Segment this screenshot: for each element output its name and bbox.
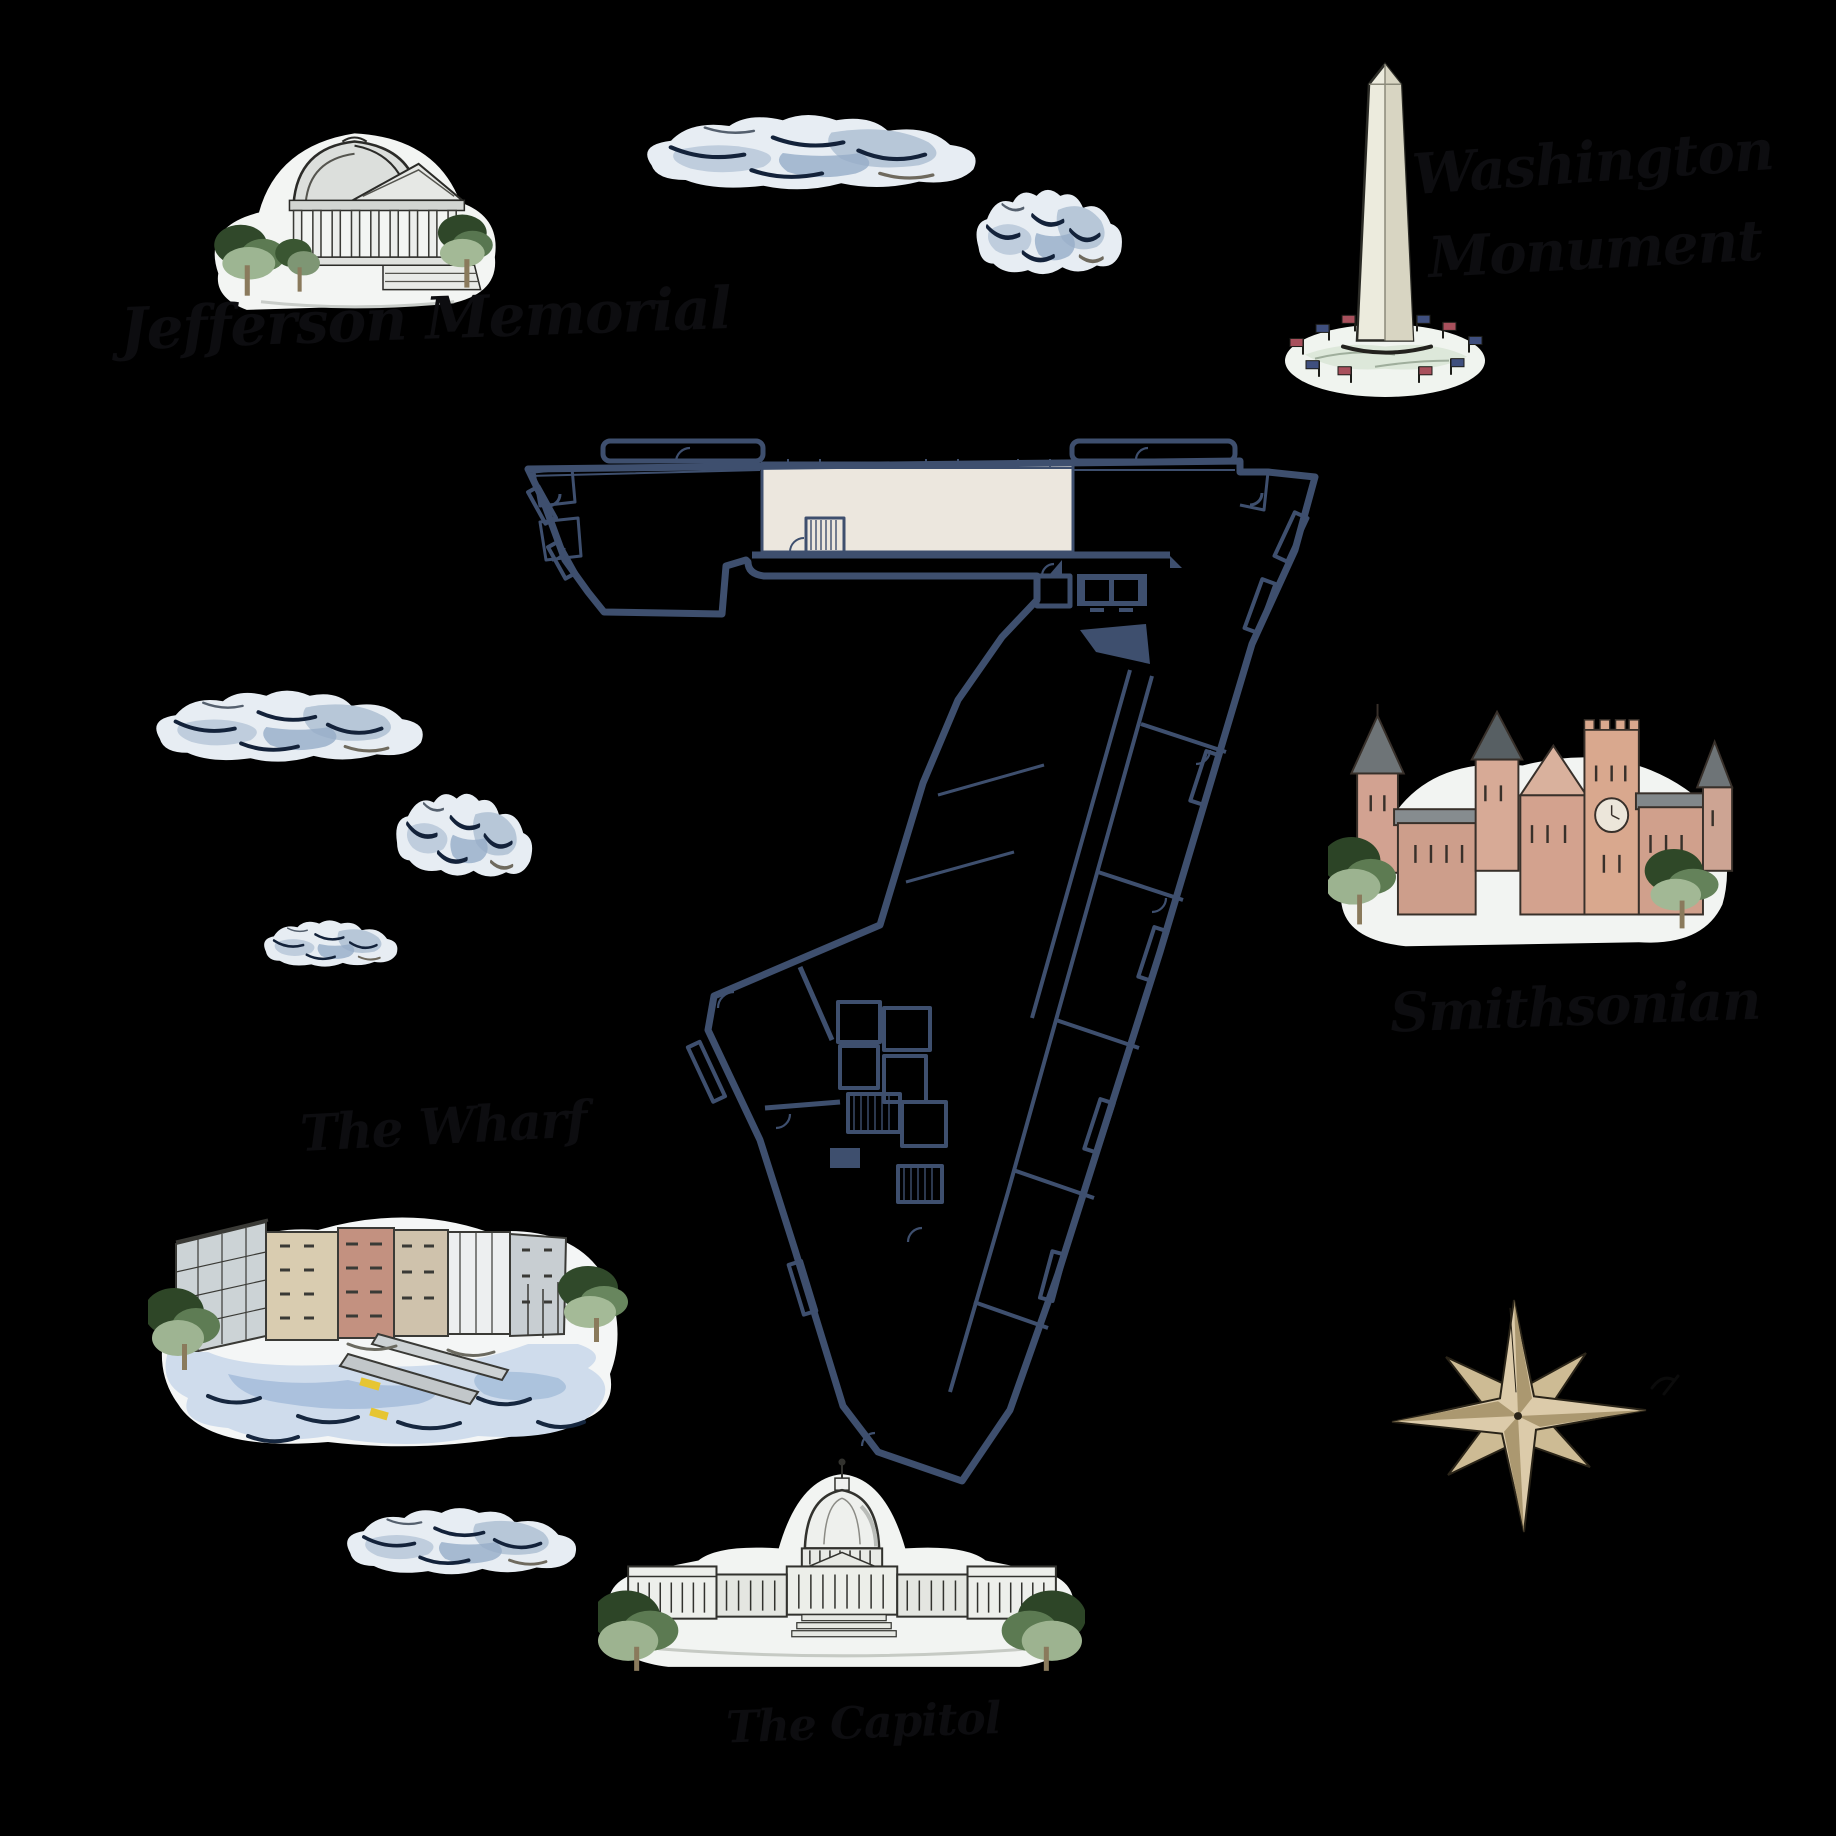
wharf-label: The Wharf — [299, 1095, 571, 1159]
stair-elevator-core — [765, 967, 946, 1202]
interior-walls — [950, 670, 1226, 1392]
smithsonian-illustration — [1328, 696, 1736, 984]
jefferson-memorial-label: Jefferson Memorial — [119, 284, 601, 359]
cloud-left-small — [260, 916, 402, 972]
dc-map-scene: Jefferson Memorial Washington Monument — [0, 0, 1836, 1836]
cloud-top-center — [637, 108, 987, 198]
cloud-top-right-small — [972, 182, 1127, 284]
memorial-columns — [294, 211, 457, 258]
plan-outer-walls — [528, 461, 1315, 1481]
cloud-left-long — [148, 684, 432, 770]
wharf-illustration — [148, 1184, 628, 1456]
cloud-left-mid — [387, 779, 543, 894]
smithsonian-label: Smithsonian — [1389, 974, 1711, 1039]
washington-monument-label-line2: Monument — [1427, 214, 1740, 286]
compass-star-icon — [1388, 1298, 1652, 1534]
cloud-bottom-left — [340, 1502, 584, 1582]
elevator-core — [1037, 574, 1150, 664]
highlighted-unit[interactable] — [762, 463, 1073, 552]
capitol-illustration — [598, 1448, 1085, 1704]
castle-clock — [1595, 798, 1628, 832]
capitol-label: The Capitol — [725, 1697, 986, 1750]
ink-mark — [1650, 1368, 1686, 1404]
